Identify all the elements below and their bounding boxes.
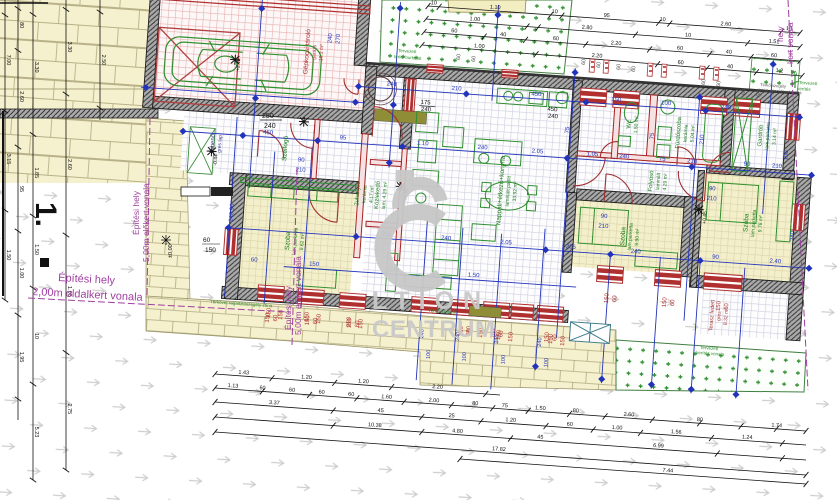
svg-text:60: 60 (701, 79, 707, 86)
svg-text:45: 45 (377, 408, 384, 414)
svg-text:60: 60 (677, 46, 684, 52)
svg-text:3.30: 3.30 (66, 42, 72, 53)
svg-text:150: 150 (611, 97, 622, 104)
svg-text:210: 210 (699, 134, 706, 145)
svg-text:10.38: 10.38 (368, 422, 382, 429)
svg-text:1.00: 1.00 (474, 43, 485, 50)
svg-text:150: 150 (316, 313, 323, 324)
svg-text:60: 60 (203, 237, 211, 244)
svg-text:150: 150 (548, 333, 555, 344)
svg-text:60: 60 (471, 56, 477, 63)
svg-text:60: 60 (289, 387, 296, 393)
svg-text:CENTRUM: CENTRUM (372, 316, 496, 343)
svg-text:3.15: 3.15 (5, 154, 11, 165)
svg-text:1.10: 1.10 (417, 141, 430, 148)
svg-text:60: 60 (259, 385, 266, 391)
svg-text:Építési hely: Építési hely (283, 285, 293, 330)
svg-text:10: 10 (551, 9, 558, 15)
svg-text:1.10: 1.10 (490, 4, 501, 11)
svg-text:240: 240 (790, 230, 797, 241)
svg-text:60: 60 (251, 257, 259, 263)
svg-text:450: 450 (547, 107, 558, 114)
svg-text:80: 80 (697, 417, 704, 423)
svg-text:150: 150 (662, 296, 669, 307)
svg-text:17.82: 17.82 (492, 446, 506, 453)
svg-text:60: 60 (716, 81, 722, 88)
svg-text:1.50: 1.50 (535, 405, 546, 412)
svg-text:2.60: 2.60 (18, 91, 24, 102)
svg-text:1.50: 1.50 (5, 250, 11, 261)
svg-text:210: 210 (772, 163, 783, 170)
svg-text:+2.18: +2.18 (235, 58, 242, 71)
svg-text:7.00: 7.00 (5, 55, 11, 66)
svg-text:kert vonala: kert vonala (785, 22, 795, 64)
svg-text:2.20: 2.20 (432, 384, 443, 391)
svg-text:45: 45 (537, 434, 544, 440)
svg-text:150: 150 (346, 316, 353, 327)
svg-text:80: 80 (18, 22, 24, 28)
svg-text:75: 75 (502, 403, 509, 409)
svg-text:1.20: 1.20 (505, 417, 516, 424)
svg-text:1.13: 1.13 (227, 383, 238, 390)
svg-text:150: 150 (358, 318, 365, 329)
svg-text:A: A (793, 71, 798, 78)
svg-text:270: 270 (335, 33, 342, 44)
svg-text:1.24: 1.24 (742, 434, 753, 441)
svg-text:25: 25 (448, 413, 455, 419)
svg-text:95: 95 (604, 13, 611, 19)
svg-text:Szoba: Szoba (742, 213, 750, 232)
svg-text:gres: gres (716, 311, 723, 322)
svg-text:60: 60 (771, 53, 778, 59)
svg-text:-0.44: -0.44 (213, 154, 220, 166)
svg-text:garázs: garázs (311, 44, 318, 60)
svg-text:100: 100 (661, 101, 672, 108)
svg-text:240: 240 (537, 337, 544, 347)
svg-text:100: 100 (543, 358, 550, 368)
svg-text:1.95: 1.95 (18, 352, 24, 363)
svg-text:60: 60 (318, 390, 325, 396)
svg-text:10: 10 (659, 17, 666, 23)
svg-text:+0.45: +0.45 (702, 211, 709, 224)
svg-text:150: 150 (205, 247, 216, 254)
svg-text:150: 150 (304, 311, 311, 322)
svg-text:90: 90 (743, 161, 751, 167)
svg-text:4.80: 4.80 (452, 428, 463, 435)
svg-text:5.23: 5.23 (33, 427, 39, 438)
svg-text:1.00: 1.00 (18, 268, 24, 279)
svg-text:1.00: 1.00 (612, 425, 623, 432)
svg-text:75: 75 (565, 126, 571, 134)
svg-text:240: 240 (327, 32, 334, 43)
svg-text:laminált: laminált (655, 172, 662, 190)
svg-text:240: 240 (264, 123, 276, 130)
svg-text:Szoba: Szoba (619, 226, 627, 245)
svg-text:60: 60 (553, 36, 560, 42)
svg-text:2.40: 2.40 (769, 258, 782, 265)
svg-text:gres lap: gres lap (217, 135, 224, 153)
svg-text:2.80: 2.80 (581, 25, 592, 32)
svg-text:240: 240 (477, 145, 488, 152)
svg-text:90: 90 (298, 157, 306, 163)
svg-text:9.78 m²: 9.78 m² (757, 215, 764, 233)
svg-text:40: 40 (726, 49, 733, 55)
svg-text:2.20: 2.20 (610, 40, 621, 47)
svg-text:60: 60 (456, 54, 462, 61)
svg-text:240: 240 (387, 81, 398, 88)
svg-text:150: 150 (604, 292, 611, 303)
svg-text:5.04 m²: 5.04 m² (689, 125, 696, 143)
svg-text:210: 210 (598, 223, 609, 230)
svg-text:1.74: 1.74 (771, 422, 782, 429)
svg-text:80: 80 (572, 408, 579, 414)
svg-text:1.85: 1.85 (33, 167, 39, 178)
svg-text:60: 60 (596, 62, 602, 69)
svg-text:150: 150 (716, 300, 723, 311)
svg-text:240: 240 (548, 114, 559, 121)
svg-text:150: 150 (496, 329, 503, 340)
svg-text:205: 205 (566, 244, 577, 251)
svg-text:3.14 m²: 3.14 m² (771, 128, 778, 146)
svg-text:210: 210 (687, 158, 698, 165)
svg-text:75: 75 (650, 132, 656, 140)
svg-text:40: 40 (727, 64, 734, 70)
svg-text:1.05: 1.05 (586, 151, 599, 158)
svg-text:100: 100 (462, 352, 469, 362)
svg-text:LTION: LTION (372, 287, 490, 315)
svg-text:1.50 m²: 1.50 m² (633, 116, 640, 134)
svg-text:240: 240 (229, 211, 236, 222)
svg-text:60: 60 (677, 60, 684, 66)
svg-text:2.75: 2.75 (66, 404, 72, 415)
svg-text:9.62 m²: 9.62 m² (299, 233, 306, 251)
svg-text:10: 10 (33, 333, 39, 339)
svg-text:5,00m előkert vonala: 5,00m előkert vonala (293, 256, 303, 335)
svg-text:150: 150 (560, 335, 567, 346)
svg-text:95: 95 (18, 186, 24, 192)
svg-text:4.29 m²: 4.29 m² (662, 173, 669, 191)
svg-text:1.60: 1.60 (381, 394, 392, 401)
svg-text:10: 10 (685, 32, 692, 38)
svg-text:60: 60 (451, 28, 458, 34)
svg-text:150: 150 (508, 331, 515, 342)
svg-text:Építési hely: Építési hely (131, 190, 141, 235)
svg-text:2.60: 2.60 (623, 412, 634, 419)
svg-text:1.50: 1.50 (468, 272, 481, 279)
svg-text:60: 60 (724, 302, 730, 310)
svg-text:3.37: 3.37 (269, 400, 280, 407)
svg-text:1.50: 1.50 (33, 244, 39, 255)
svg-text:240: 240 (721, 105, 732, 112)
svg-text:7.44: 7.44 (662, 468, 673, 475)
svg-text:240: 240 (441, 236, 452, 243)
svg-text:1.: 1. (29, 202, 62, 227)
svg-text:60: 60 (581, 59, 587, 66)
svg-text:210: 210 (706, 196, 717, 203)
svg-text:2.60: 2.60 (720, 21, 731, 28)
svg-text:10: 10 (431, 0, 438, 6)
svg-text:100: 100 (426, 350, 433, 360)
svg-text:60: 60 (631, 66, 637, 73)
svg-text:240: 240 (421, 107, 432, 114)
svg-text:60: 60 (616, 64, 622, 71)
svg-text:100: 100 (783, 150, 790, 161)
svg-text:1.2: 1.2 (775, 68, 783, 75)
svg-text:75: 75 (659, 157, 667, 163)
svg-text:150: 150 (266, 307, 273, 318)
svg-text:175: 175 (420, 100, 431, 107)
svg-text:1.20: 1.20 (301, 374, 312, 381)
svg-text:hely: hely (775, 26, 785, 42)
svg-text:450: 450 (263, 130, 274, 137)
svg-text:±0,00: ±0,00 (168, 244, 174, 258)
svg-text:2.20: 2.20 (591, 53, 602, 60)
svg-text:90: 90 (230, 203, 236, 211)
svg-text:4.17 m²: 4.17 m² (368, 186, 375, 204)
svg-text:40: 40 (500, 32, 507, 38)
svg-text:Wc: Wc (626, 120, 633, 129)
svg-text:3.30: 3.30 (33, 62, 39, 73)
svg-text:60: 60 (567, 422, 574, 428)
svg-text:90: 90 (601, 214, 609, 220)
svg-text:240: 240 (619, 154, 630, 161)
svg-text:100: 100 (501, 355, 508, 365)
svg-text:16.3 m²: 16.3 m² (318, 44, 325, 62)
svg-text:60: 60 (741, 89, 747, 96)
svg-text:2.50: 2.50 (100, 55, 106, 66)
svg-text:kerámia: kerámia (682, 124, 689, 142)
svg-text:80: 80 (472, 401, 479, 407)
svg-text:210: 210 (451, 86, 462, 93)
svg-text:2.00: 2.00 (428, 398, 439, 405)
svg-text:1.56: 1.56 (671, 429, 682, 436)
svg-text:2.05: 2.05 (531, 149, 544, 156)
svg-text:250: 250 (262, 113, 274, 120)
svg-text:2.60: 2.60 (66, 159, 72, 170)
svg-text:1.20: 1.20 (358, 379, 369, 386)
svg-text:60: 60 (348, 392, 355, 398)
svg-text:90: 90 (709, 186, 717, 192)
svg-text:kerámia: kerámia (361, 185, 368, 203)
svg-text:95: 95 (339, 135, 347, 141)
svg-text:Szoba: Szoba (284, 231, 292, 250)
svg-text:450: 450 (531, 91, 542, 98)
svg-text:1.43: 1.43 (238, 370, 249, 377)
svg-text:150: 150 (309, 261, 320, 268)
svg-text:2.05: 2.05 (500, 240, 513, 247)
svg-text:60: 60 (612, 295, 618, 303)
svg-text:60: 60 (670, 299, 676, 307)
svg-text:9.90 m²: 9.90 m² (634, 228, 641, 246)
svg-text:6.99: 6.99 (653, 443, 664, 450)
svg-text:90: 90 (712, 254, 720, 260)
svg-text:1.00: 1.00 (469, 16, 480, 23)
svg-text:5,00m előkert vonala: 5,00m előkert vonala (141, 183, 151, 262)
